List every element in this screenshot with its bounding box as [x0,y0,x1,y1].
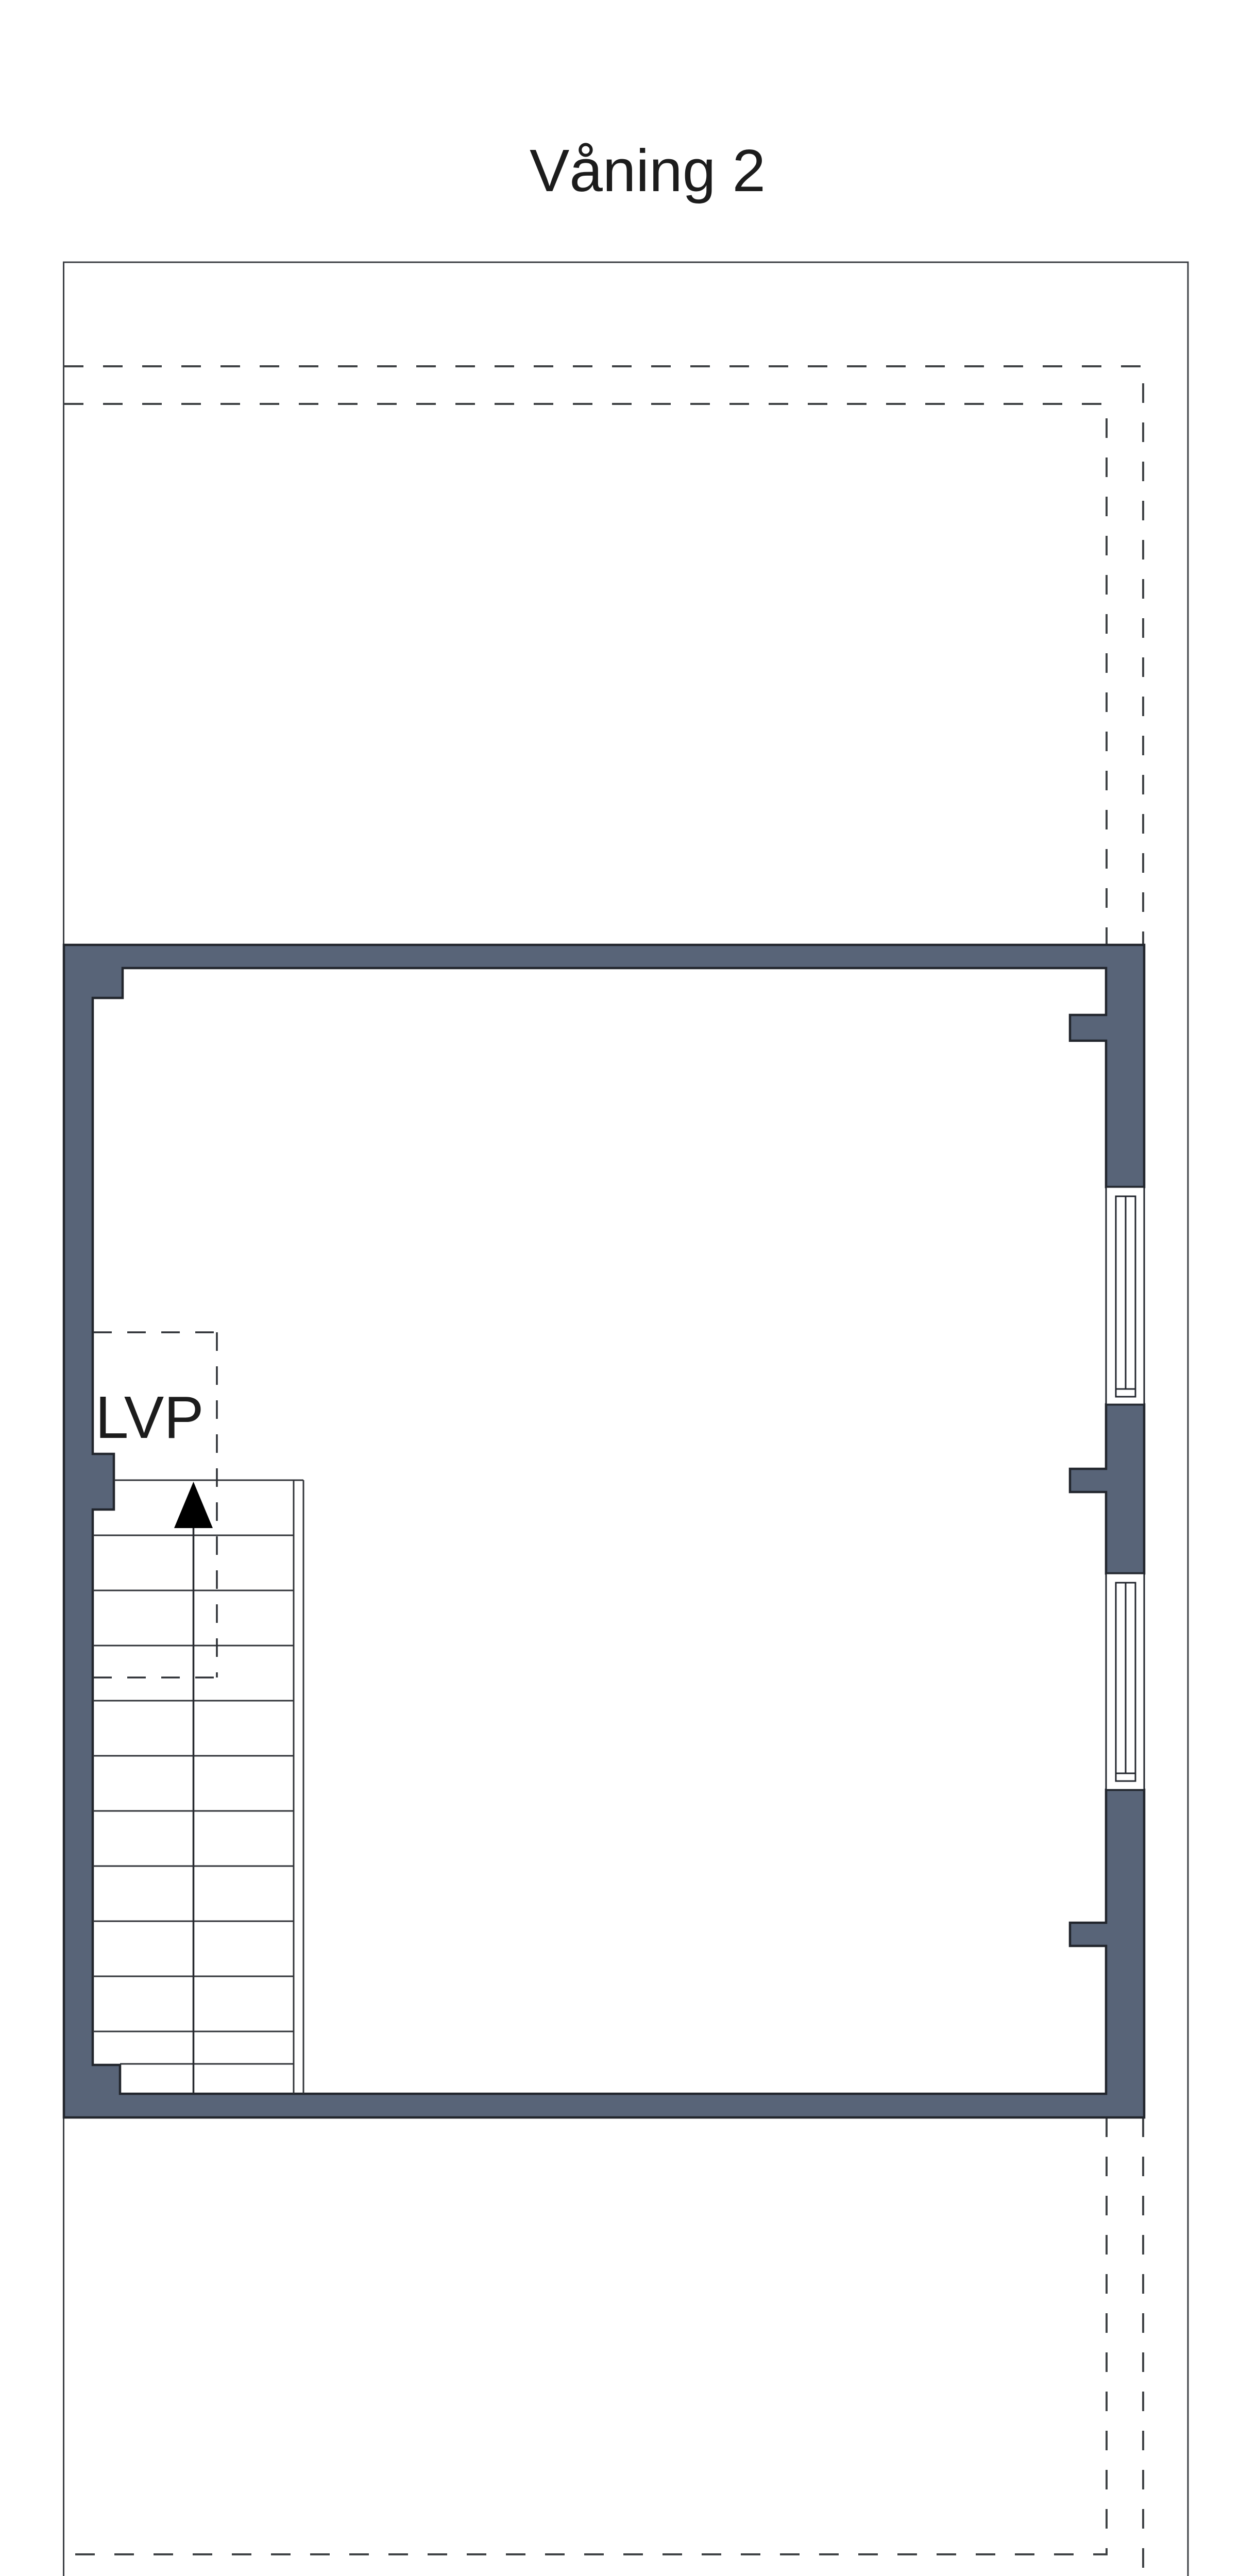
svg-text:Våning 2: Våning 2 [530,137,766,204]
svg-text:LVP: LVP [95,1384,204,1451]
